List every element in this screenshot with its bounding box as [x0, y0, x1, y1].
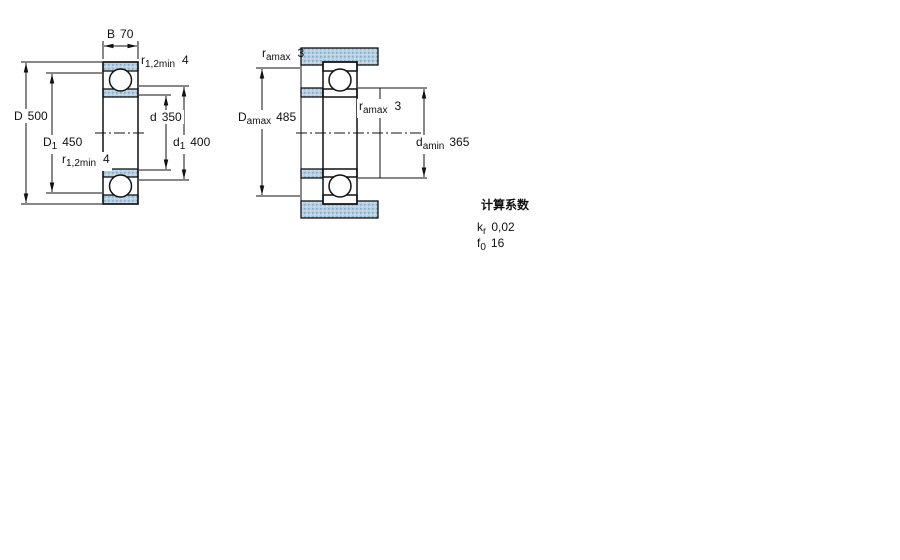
technical-drawing-canvas [0, 0, 900, 560]
dim-label-r12min-bottom: r1,2min4 [60, 152, 112, 171]
ball [110, 175, 132, 197]
dim-subscript: 1,2min [145, 59, 175, 70]
dim-label-B: B70 [107, 27, 133, 41]
dim-label-d: d350 [148, 110, 184, 124]
dim-subscript: 1 [180, 141, 186, 152]
dim-label-ramax-top: ramax3 [262, 46, 304, 65]
left-bearing-section [95, 62, 146, 204]
dim-value: 365 [449, 135, 469, 149]
dim-value: 4 [103, 152, 110, 166]
dim-value: 70 [120, 27, 133, 41]
dim-subscript: 1,2min [66, 158, 96, 169]
dim-value: 400 [190, 135, 210, 149]
ball [329, 175, 351, 197]
dim-subscript: amax [266, 52, 290, 63]
dim-label-ramax-mid: ramax3 [357, 99, 403, 118]
dim-label-D: D500 [12, 109, 50, 123]
factor-subscript: 0 [480, 242, 486, 253]
dim-symbol: D [238, 110, 247, 124]
dim-subscript: amax [247, 116, 271, 127]
dim-symbol: d [150, 110, 157, 124]
dim-label-damin: damin365 [414, 135, 471, 154]
factor-value: 16 [491, 236, 504, 250]
ball [329, 69, 351, 91]
dim-value: 500 [28, 109, 48, 123]
dim-label-r12min-top: r1,2min4 [141, 53, 189, 72]
dim-symbol: D [43, 135, 52, 149]
dim-subscript: amax [363, 105, 387, 116]
dim-symbol: d [173, 135, 180, 149]
dim-symbol: B [107, 27, 115, 41]
dim-value: 485 [276, 110, 296, 124]
dim-value: 4 [182, 53, 189, 67]
calculation-factors-title: 计算系数 [481, 198, 529, 212]
factor-row-f0: f016 [477, 236, 504, 255]
dim-value: 450 [62, 135, 82, 149]
bearing-dimension-drawing: B70 r1,2min4 D500 D1450 r1,2min4 d350 d1… [0, 0, 900, 560]
dim-symbol: d [416, 135, 423, 149]
dim-value: 3 [297, 46, 304, 60]
right-abutment-section [296, 48, 421, 218]
dim-subscript: amin [423, 141, 445, 152]
factor-value: 0,02 [491, 220, 514, 234]
ball [110, 69, 132, 91]
dim-label-Damax: Damax485 [236, 110, 298, 129]
dim-subscript: 1 [52, 141, 58, 152]
dim-label-d1: d1400 [171, 135, 212, 154]
dim-symbol: D [14, 109, 23, 123]
dim-value: 350 [162, 110, 182, 124]
dim-value: 3 [394, 99, 401, 113]
